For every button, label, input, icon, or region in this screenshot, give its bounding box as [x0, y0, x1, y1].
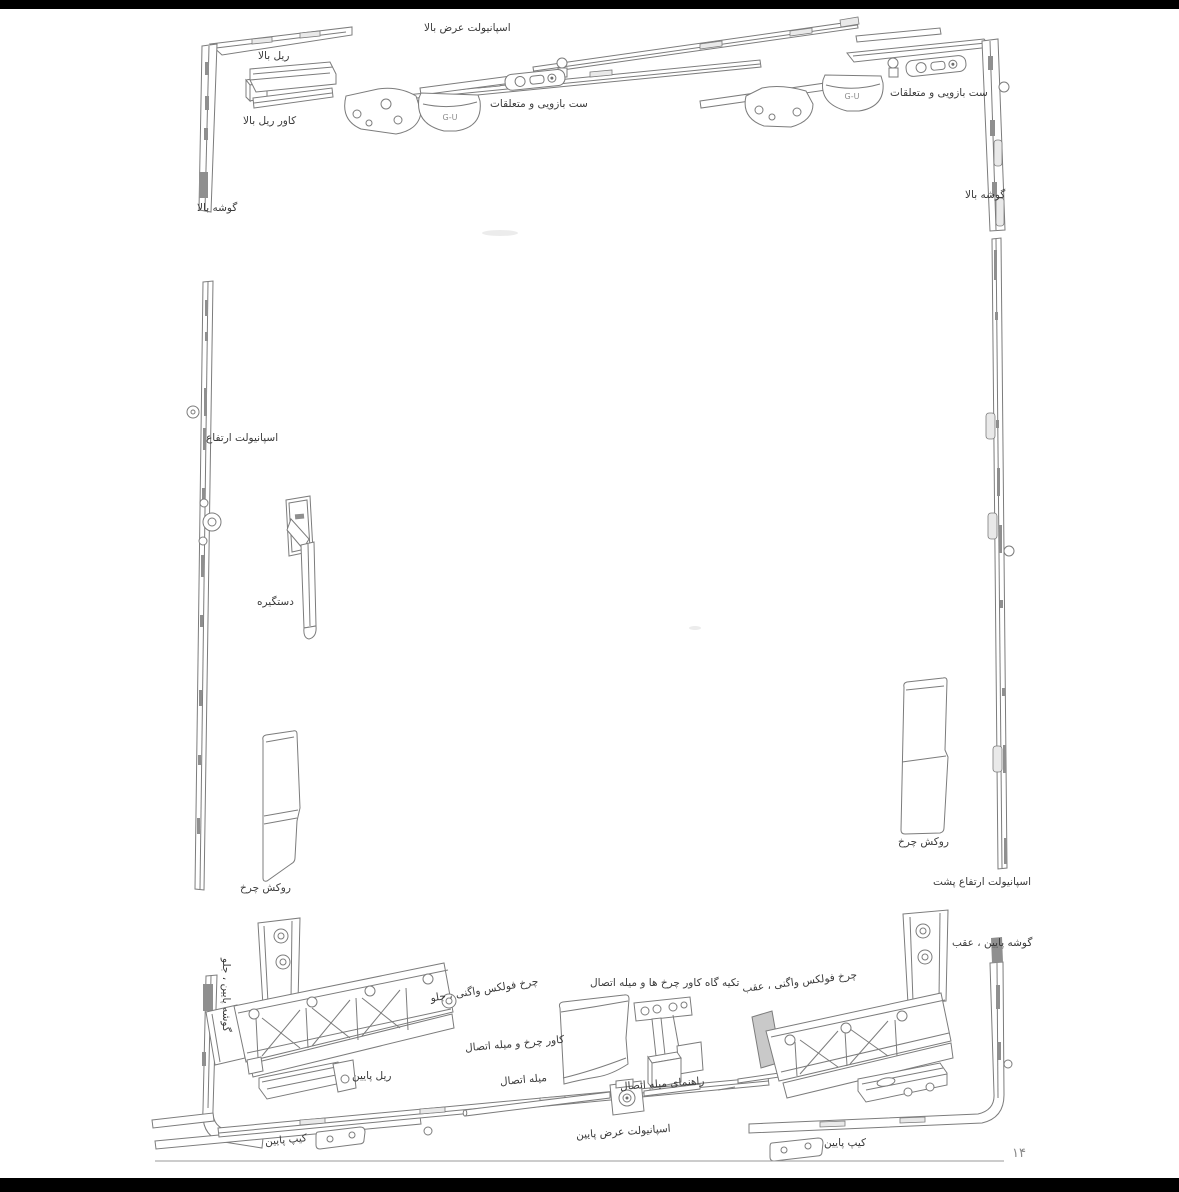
label-top-corner-right: گوشه بالا: [965, 189, 1005, 202]
label-height-espagnolette: اسپانیولت ارتفاع: [206, 432, 278, 445]
label-top-rail-cover: کاور ریل بالا: [243, 115, 296, 128]
label-rear-height-espagnolette: اسپانیولت ارتفاع پشت: [933, 876, 1031, 889]
part-wheel-cover-rod-panel: [559, 995, 629, 1084]
part-vw-wheel-front: [206, 918, 456, 1077]
part-rear-height-espagnolette-rail: [986, 238, 1014, 869]
gu-logo: G-U: [845, 92, 860, 101]
label-arm-set-left: ست بازویی و متعلقات: [490, 98, 588, 111]
label-bottom-corner-front: گوشه پایین ، جلو: [219, 958, 232, 1032]
part-handle: [286, 496, 316, 639]
label-wheel-cover-right: روکش چرخ: [898, 836, 949, 849]
part-wheel-cover-left: [263, 731, 300, 881]
part-height-espagnolette-rail: [187, 281, 221, 890]
label-arm-set-right: ست بازویی و متعلقات: [890, 87, 988, 100]
diagram-illustration: G-U G-U: [0, 0, 1179, 1192]
gu-logo: G-U: [443, 113, 458, 122]
label-top-width-espagnolette: اسپانیولت عرض بالا: [424, 22, 511, 35]
label-handle: دستگیره: [257, 596, 294, 609]
part-support: [634, 997, 703, 1088]
part-top-rail: [250, 62, 336, 92]
part-keep-bottom-right: [770, 1138, 823, 1161]
catalog-page: { "page": { "number_fa": "۱۴", "backgrou…: [0, 0, 1179, 1192]
label-wheel-cover-left: روکش چرخ: [240, 882, 291, 895]
label-top-rail: ریل بالا: [258, 50, 289, 63]
label-top-corner-left: گوشه بالا: [197, 202, 237, 215]
label-keep-bottom-right: کیپ پایین: [824, 1137, 866, 1150]
part-wheel-cover-right: [901, 678, 948, 834]
label-bottom-rail: ریل پایین: [352, 1070, 392, 1083]
label-bottom-corner-rear: گوشه پایین ، عقب: [952, 937, 1032, 950]
label-support: تکیه گاه کاور چرخ ها و میله اتصال: [590, 977, 739, 990]
page-number: ۱۴: [1012, 1146, 1026, 1161]
